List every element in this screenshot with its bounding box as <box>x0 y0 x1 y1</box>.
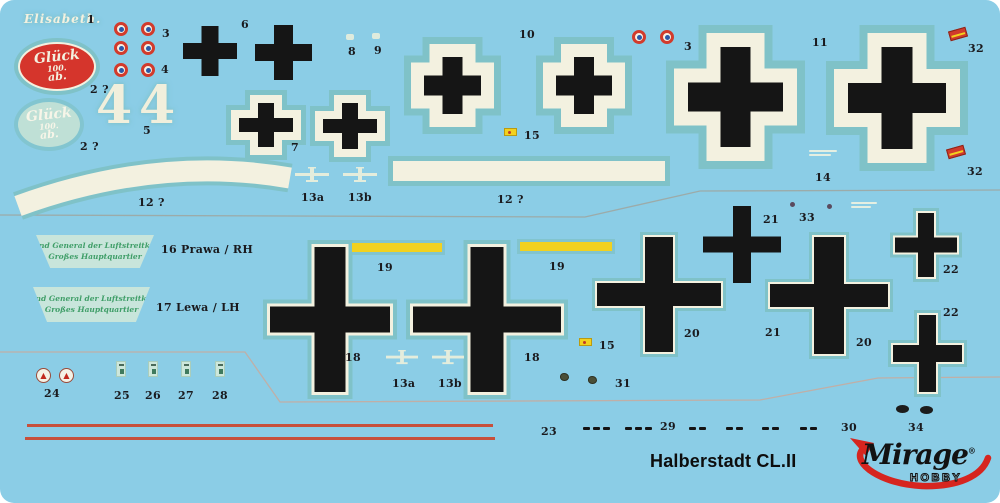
label-22b: 22 <box>943 306 959 319</box>
kogenluft-line2: Großes Hauptquartier <box>48 252 141 262</box>
balkenkreuz-6-right <box>255 25 312 80</box>
balkenkreuz-18-right <box>406 240 568 399</box>
label-15b: 15 <box>599 339 615 352</box>
label-19a: 19 <box>377 261 393 274</box>
yellow-plate-decal <box>579 338 592 346</box>
small-dot-decal <box>790 202 795 207</box>
aircraft-silhouette-decal <box>343 167 377 184</box>
sheet-title: Halberstadt CL.II <box>650 451 796 472</box>
cockade-roundel <box>141 22 155 36</box>
dash-marks-decal <box>762 427 779 430</box>
label-21a: 21 <box>763 213 779 226</box>
cockade-roundel <box>114 22 128 36</box>
balkenkreuz-22-bottom <box>888 310 967 397</box>
curved-band-decal <box>8 148 300 223</box>
small-blob-decal <box>560 373 569 381</box>
label-3b: 3 <box>684 40 692 53</box>
label-10: 10 <box>519 28 535 41</box>
label-22a: 22 <box>943 263 959 276</box>
red-stripe-decal <box>25 437 495 440</box>
label-6: 6 <box>241 18 249 31</box>
balkenkreuz-6-left <box>183 26 237 76</box>
yellow-strip-decal <box>520 242 612 251</box>
data-plate-decal <box>148 361 158 377</box>
label-25: 25 <box>114 389 130 402</box>
glueck-outline-oval-decal: Glück 100. ab. <box>18 102 80 147</box>
label-33: 33 <box>799 211 815 224</box>
label-13a-mid: 13a <box>392 377 415 390</box>
glueck-red-oval-decal: Glück 100. ab. <box>20 44 94 89</box>
warning-triangle-decal: ▲ <box>36 368 51 383</box>
mirage-hobby-logo: Mirage® HOBBY <box>848 434 996 496</box>
white-microtext-decal <box>809 148 839 158</box>
balkenkreuz-21-large <box>765 232 893 359</box>
dash-marks-decal <box>583 427 610 430</box>
decal-sheet: Elisabeth. Glück 100. ab. Glück 100. ab.… <box>0 0 1000 503</box>
label-28: 28 <box>212 389 228 402</box>
yellow-strip-decal <box>352 243 442 252</box>
label-12a: 12 ? <box>138 196 165 209</box>
balkenkreuz-10-right <box>536 37 632 134</box>
label-34: 34 <box>908 421 924 434</box>
label-12b: 12 ? <box>497 193 524 206</box>
logo-brand-name: Mirage® <box>862 438 975 471</box>
label-21b: 21 <box>765 326 781 339</box>
label-14: 14 <box>815 171 831 184</box>
yellow-plate-decal <box>504 128 517 136</box>
label-4: 4 <box>161 63 169 76</box>
label-7: 7 <box>291 141 299 154</box>
label-13a-top: 13a <box>301 191 324 204</box>
glueck-line3: ab. <box>47 71 67 83</box>
label-13b-top: 13b <box>348 191 372 204</box>
data-plate-decal <box>181 361 191 377</box>
small-dot-decal <box>827 204 832 209</box>
dash-marks-decal <box>689 427 706 430</box>
label-16: 16 Prawa / RH <box>161 243 253 256</box>
cockade-roundel <box>114 41 128 55</box>
label-13b-mid: 13b <box>438 377 462 390</box>
straight-band-decal <box>388 156 670 186</box>
cockade-roundel <box>141 41 155 55</box>
label-32b: 32 <box>967 165 983 178</box>
label-19b: 19 <box>549 260 565 273</box>
small-stencil-decal <box>372 33 380 39</box>
warning-triangle-decal: ▲ <box>59 368 74 383</box>
label-20a: 20 <box>684 327 700 340</box>
aircraft-silhouette-decal <box>295 167 329 184</box>
label-3a: 3 <box>162 27 170 40</box>
aircraft-silhouette-decal <box>432 350 464 366</box>
black-oval-decal <box>896 405 909 413</box>
aircraft-silhouette-decal <box>386 350 418 366</box>
logo-brand-sub: HOBBY <box>910 472 962 484</box>
kogenluft-plate-right: Komnd General der Luftstreitkräfte Große… <box>36 235 154 268</box>
label-11: 11 <box>812 36 828 49</box>
label-18b: 18 <box>524 351 540 364</box>
small-stencil-decal <box>346 34 354 40</box>
small-blob-decal <box>588 376 597 384</box>
dash-marks-decal <box>726 427 743 430</box>
label-32a: 32 <box>968 42 984 55</box>
label-17: 17 Lewa / LH <box>156 301 240 314</box>
label-9: 9 <box>374 44 382 57</box>
black-oval-decal <box>920 406 933 414</box>
label-30: 30 <box>841 421 857 434</box>
label-2a: 2 ? <box>90 83 109 96</box>
dash-marks-decal <box>625 427 652 430</box>
kogenluft-plate-left: Komnd General der Luftstreitkräfte Große… <box>33 287 150 322</box>
label-18a: 18 <box>345 351 361 364</box>
data-plate-decal <box>215 361 225 377</box>
label-15a: 15 <box>524 129 540 142</box>
label-24: 24 <box>44 387 60 400</box>
label-29: 29 <box>660 420 676 433</box>
label-27: 27 <box>178 389 194 402</box>
label-1: 1 <box>87 13 95 26</box>
balkenkreuz-7-right <box>310 90 390 162</box>
registered-mark: ® <box>968 446 975 456</box>
label-8: 8 <box>348 45 356 58</box>
balkenkreuz-10-left <box>404 37 501 134</box>
label-23: 23 <box>541 425 557 438</box>
label-31: 31 <box>615 377 631 390</box>
kogenluft-line2: Großes Hauptquartier <box>45 305 138 315</box>
glueck-line3: ab. <box>39 129 59 141</box>
red-stripe-decal <box>27 424 493 427</box>
label-20b: 20 <box>856 336 872 349</box>
dash-marks-decal <box>800 427 817 430</box>
cockade-roundel <box>632 30 646 44</box>
label-2b: 2 ? <box>80 140 99 153</box>
label-5: 5 <box>143 124 151 137</box>
white-microtext-decal <box>851 200 879 210</box>
label-26: 26 <box>145 389 161 402</box>
data-plate-decal <box>116 361 126 377</box>
